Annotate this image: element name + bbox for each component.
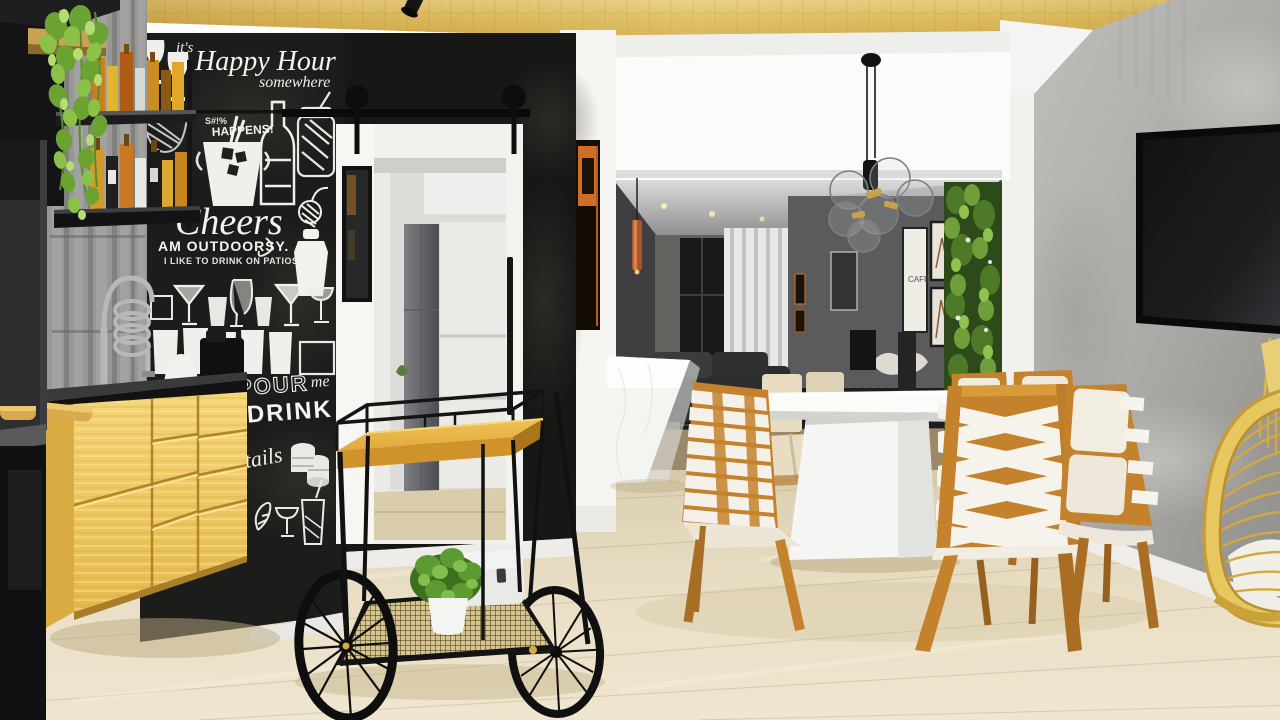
svg-text:Happy Hour: Happy Hour xyxy=(194,46,336,77)
svg-text:POUR: POUR xyxy=(236,370,309,400)
svg-text:AM OUTDOORSY.: AM OUTDOORSY. xyxy=(158,238,289,254)
svg-text:CAFÉ: CAFÉ xyxy=(908,275,929,284)
svg-text:I LIKE TO DRINK ON PATIOS: I LIKE TO DRINK ON PATIOS xyxy=(164,256,299,266)
svg-text:me: me xyxy=(310,373,330,391)
svg-text:somewhere: somewhere xyxy=(259,74,330,91)
